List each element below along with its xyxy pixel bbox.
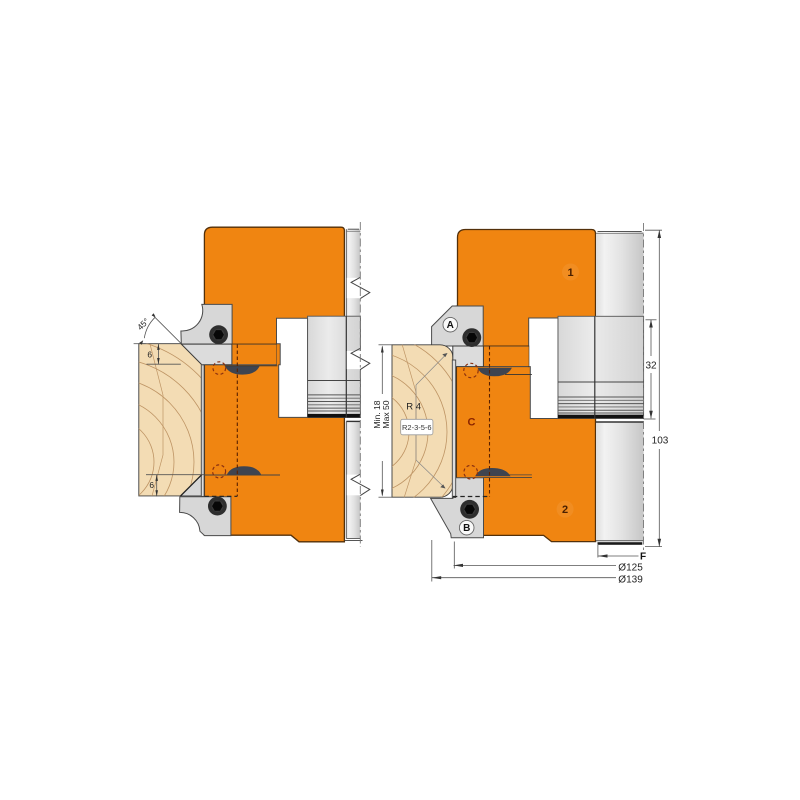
svg-text:6: 6 (149, 480, 154, 490)
svg-text:2: 2 (562, 504, 568, 516)
svg-text:32: 32 (645, 361, 657, 372)
svg-text:Ø139: Ø139 (618, 575, 643, 586)
svg-text:C: C (468, 416, 476, 428)
svg-text:Max 50: Max 50 (381, 400, 391, 428)
svg-text:A: A (447, 320, 454, 331)
svg-text:R2-3-5-6: R2-3-5-6 (402, 423, 432, 432)
svg-text:F: F (640, 552, 646, 563)
svg-text:Ø125: Ø125 (618, 563, 643, 574)
svg-text:6: 6 (147, 350, 152, 360)
svg-text:103: 103 (652, 436, 669, 447)
svg-text:B: B (463, 523, 470, 534)
svg-text:R 4: R 4 (406, 402, 421, 413)
svg-text:1: 1 (567, 267, 573, 279)
